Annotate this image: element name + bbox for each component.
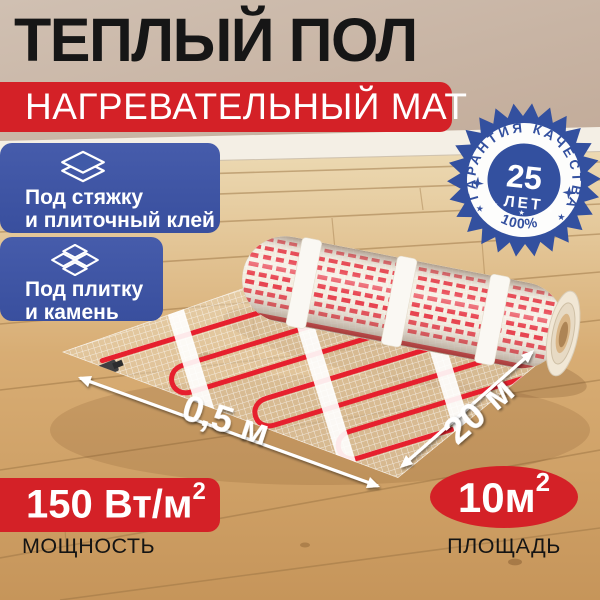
power-value: 150 Вт/м2 (0, 482, 206, 527)
feature-tile-line1: Под плитку (25, 278, 163, 301)
svg-text:★: ★ (518, 209, 525, 218)
product-title: ТЕПЛЫЙ ПОЛ (14, 0, 574, 80)
svg-text:★: ★ (475, 203, 484, 214)
power-value-sup: 2 (193, 478, 206, 505)
area-value-sup: 2 (536, 467, 550, 497)
feature-badge-screed: Под стяжку и плиточный клей (0, 143, 220, 233)
feature-tile-line2: и камень (25, 301, 163, 324)
feature-screed-line2: и плиточный клей (25, 209, 220, 232)
power-value-box: 150 Вт/м2 (0, 478, 220, 532)
svg-text:★: ★ (546, 206, 554, 216)
seal-years-value: 25 (505, 157, 544, 197)
svg-text:★: ★ (490, 200, 498, 210)
subtitle-banner: НАГРЕВАТЕЛЬНЫЙ МАТ (0, 82, 452, 132)
feature-badge-tile: Под плитку и камень (0, 237, 163, 321)
svg-text:★: ★ (557, 212, 566, 223)
area-label: ПЛОЩАДЬ (430, 534, 578, 559)
product-banner: 0,5 м 20 м ГАРАНТИЯ КАЧЕСТВА 100% ★ ★ (0, 0, 600, 600)
power-label: МОЩНОСТЬ (22, 534, 155, 559)
area-value-ellipse: 10м2 (430, 466, 578, 528)
layers-icon (59, 150, 107, 184)
area-value: 10м2 (458, 473, 550, 522)
subtitle-text: НАГРЕВАТЕЛЬНЫЙ МАТ (0, 86, 467, 128)
feature-screed-line1: Под стяжку (25, 186, 220, 209)
tiles-icon (51, 244, 99, 276)
